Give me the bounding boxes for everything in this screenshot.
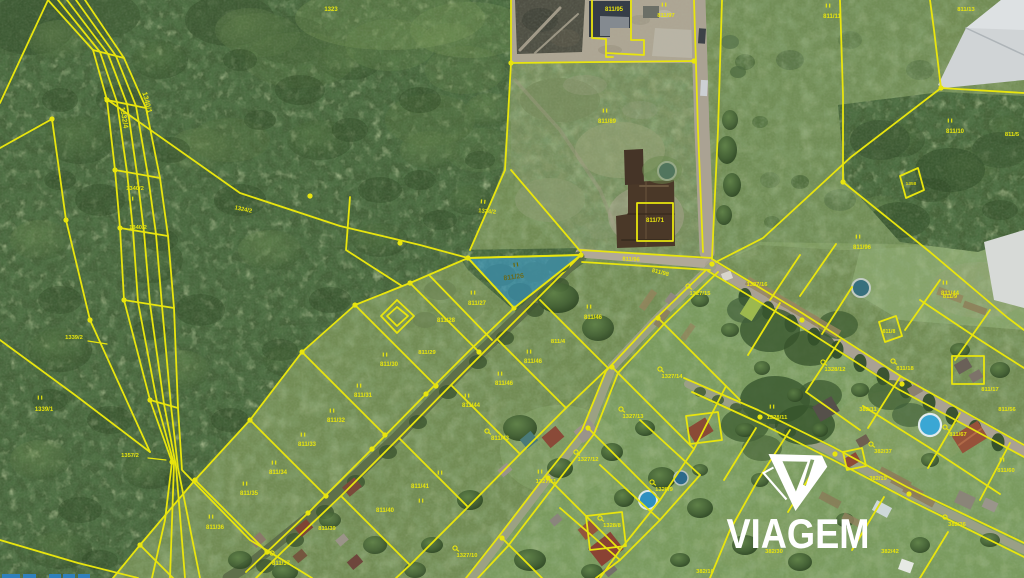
svg-text:811/11: 811/11 (823, 14, 841, 20)
svg-text:382/16: 382/16 (696, 569, 715, 575)
svg-text:1328/9: 1328/9 (655, 487, 674, 493)
svg-text:811/44: 811/44 (462, 403, 481, 409)
svg-text:1327/13: 1327/13 (623, 414, 645, 420)
svg-text:1340/2: 1340/2 (129, 225, 147, 231)
svg-text:811/13: 811/13 (957, 7, 975, 13)
svg-text:811/29: 811/29 (418, 350, 436, 356)
svg-text:811/71: 811/71 (646, 218, 665, 224)
svg-text:811/40: 811/40 (376, 508, 395, 514)
svg-text:382/37: 382/37 (874, 449, 892, 455)
svg-text:811/96: 811/96 (853, 245, 872, 251)
svg-text:811/32: 811/32 (327, 418, 346, 424)
svg-text:382/19: 382/19 (869, 476, 888, 482)
svg-text:382/42: 382/42 (881, 549, 899, 555)
svg-text:811/30: 811/30 (380, 362, 399, 368)
svg-text:811/56: 811/56 (998, 407, 1016, 413)
svg-text:811/18: 811/18 (896, 366, 914, 372)
svg-text:811/31: 811/31 (354, 393, 373, 399)
svg-text:VIAGEM: VIAGEM (727, 510, 870, 557)
svg-text:811/37: 811/37 (272, 561, 291, 567)
svg-text:1328/8: 1328/8 (603, 523, 622, 529)
svg-text:1327/15: 1327/15 (690, 291, 712, 297)
svg-text:811/46: 811/46 (584, 315, 603, 321)
svg-text:1339/1: 1339/1 (35, 407, 54, 413)
svg-text:811/41: 811/41 (411, 484, 430, 490)
svg-text:811/96: 811/96 (622, 257, 640, 264)
svg-text:1358: 1358 (906, 181, 917, 187)
svg-text:811/39: 811/39 (318, 526, 336, 532)
svg-text:811/4: 811/4 (551, 339, 566, 345)
svg-text:1339/2: 1339/2 (65, 335, 83, 341)
svg-text:811/8: 811/8 (883, 329, 896, 335)
svg-text:811/67: 811/67 (949, 432, 966, 438)
svg-text:811/17: 811/17 (981, 387, 998, 393)
svg-text:1357/2: 1357/2 (121, 453, 139, 459)
svg-text:811/46: 811/46 (495, 381, 514, 387)
svg-text:1327/16: 1327/16 (747, 282, 769, 288)
svg-text:811/9: 811/9 (943, 294, 958, 300)
svg-text:811/10: 811/10 (946, 129, 965, 135)
svg-text:811/43: 811/43 (491, 436, 510, 442)
svg-text:1323: 1323 (324, 7, 338, 13)
svg-text:811/5: 811/5 (1005, 132, 1020, 138)
svg-text:1327/10: 1327/10 (457, 553, 478, 559)
svg-text:382/11: 382/11 (859, 407, 877, 413)
svg-text:811/27: 811/27 (468, 301, 487, 307)
svg-text:811/34: 811/34 (269, 470, 288, 476)
svg-text:811/95: 811/95 (605, 7, 624, 13)
svg-text:811/33: 811/33 (298, 442, 317, 448)
svg-text:811/46: 811/46 (524, 359, 543, 365)
svg-text:1340/2: 1340/2 (126, 186, 144, 192)
svg-text:811/28: 811/28 (437, 318, 456, 324)
svg-text:1327/11: 1327/11 (536, 479, 557, 485)
svg-text:811/97: 811/97 (657, 13, 674, 19)
svg-text:1328/12: 1328/12 (825, 367, 846, 373)
svg-text:811/60: 811/60 (997, 468, 1014, 474)
svg-text:811/36: 811/36 (206, 525, 225, 531)
svg-text:1328/11: 1328/11 (767, 415, 788, 421)
svg-text:811/35: 811/35 (240, 491, 259, 497)
svg-text:1327/14: 1327/14 (662, 374, 684, 380)
svg-text:1327/12: 1327/12 (578, 457, 599, 463)
svg-text:811/89: 811/89 (598, 119, 617, 125)
svg-text:382/36: 382/36 (948, 522, 967, 528)
